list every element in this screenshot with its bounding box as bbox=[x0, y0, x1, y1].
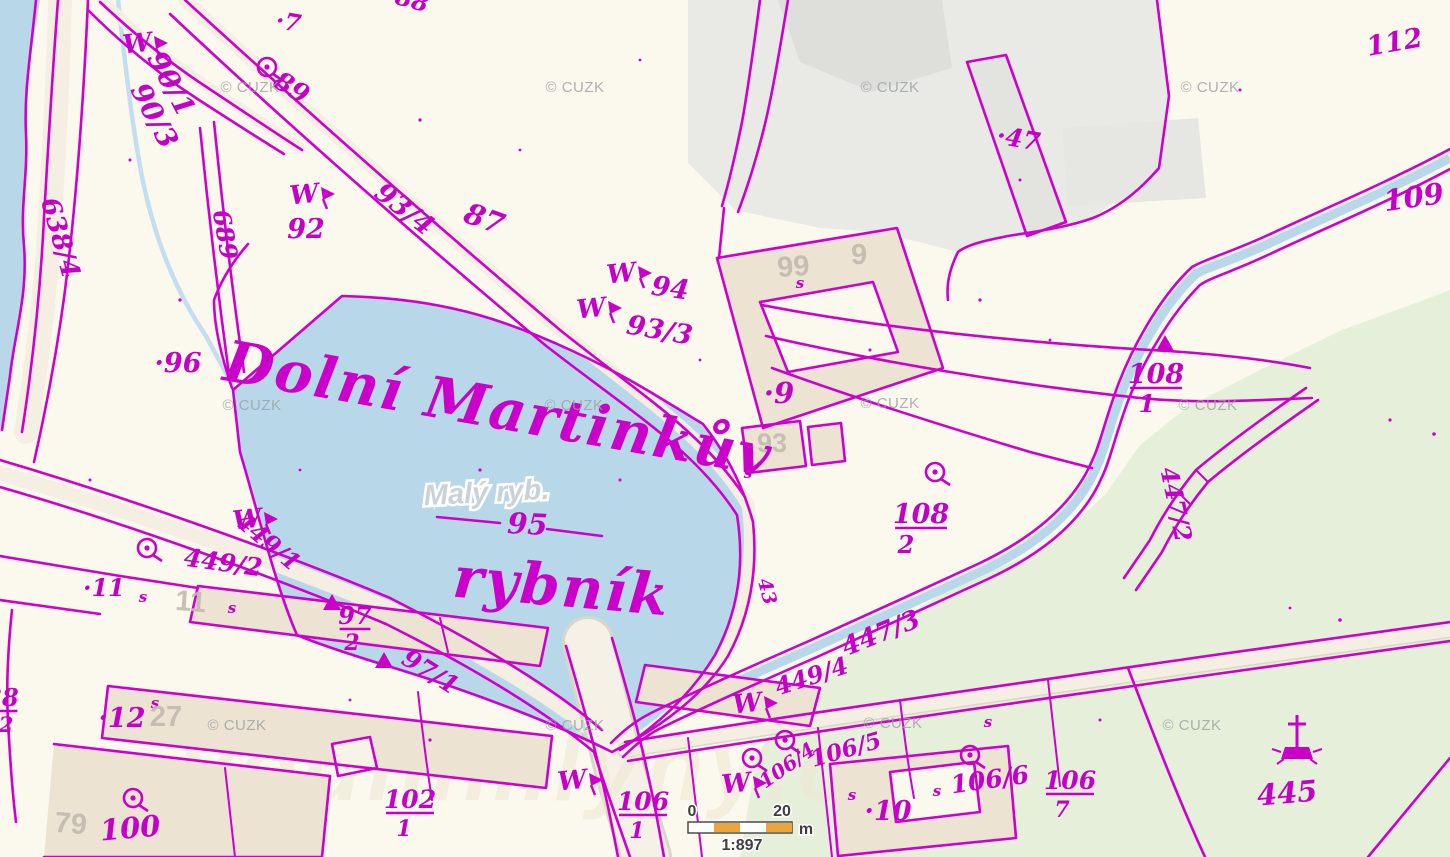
cuzk-watermark: © CUZK bbox=[1180, 79, 1239, 96]
cuzk-watermark: © CUZK bbox=[220, 79, 279, 96]
parcel-label: 2 bbox=[897, 530, 915, 559]
parcel-label: 97 bbox=[338, 601, 372, 630]
parcel-label: 108 bbox=[893, 499, 950, 530]
parcel-label: 1 bbox=[629, 818, 644, 844]
parcel-label: 92 bbox=[287, 214, 325, 245]
parcel-label: 38 bbox=[0, 683, 19, 712]
parcel-label: 445 bbox=[1255, 773, 1318, 812]
parcel-label: 1 bbox=[1139, 389, 1156, 418]
map-canvas[interactable]: W s bbox=[0, 0, 1450, 857]
cadastral-map-view: W s bbox=[0, 0, 1450, 857]
parcel-label: ·96 bbox=[155, 348, 202, 379]
cuzk-watermark: © CUZK bbox=[544, 397, 603, 414]
parcel-label: 106 bbox=[1044, 766, 1096, 795]
scalebar-segment bbox=[766, 823, 792, 832]
cuzk-watermark: © CUZK bbox=[545, 79, 604, 96]
parcel-label: 7 bbox=[1054, 797, 1070, 823]
parcel-label: ·9 bbox=[764, 376, 794, 410]
parcel-label: Malý ryb. bbox=[423, 474, 550, 513]
parcel-label: 2 bbox=[343, 630, 359, 656]
parcel-label: 108 bbox=[1128, 359, 1185, 390]
cuzk-watermark: © CUZK bbox=[863, 715, 922, 732]
s-mark-icon bbox=[933, 782, 942, 800]
scalebar-end: 20 bbox=[773, 803, 791, 820]
parcel-label: 102 bbox=[384, 785, 436, 814]
basemap-label: 27 bbox=[150, 701, 182, 733]
parcel-label: 94 bbox=[649, 271, 691, 307]
basemap-label: 9 bbox=[851, 239, 867, 271]
cuzk-watermark: © CUZK bbox=[860, 395, 919, 412]
cuzk-watermark: © CUZK bbox=[1178, 397, 1237, 414]
cuzk-watermark: © CUZK bbox=[1162, 717, 1221, 734]
parcel-label: ·12 bbox=[99, 703, 146, 734]
basemap-label: 79 bbox=[53, 807, 88, 842]
basemap-label: 99 bbox=[776, 250, 810, 284]
parcel-label: 95 bbox=[506, 506, 548, 542]
scalebar-ratio: 1:897 bbox=[722, 837, 763, 854]
scalebar-unit: m bbox=[799, 821, 813, 838]
s-mark-icon bbox=[228, 599, 237, 617]
s-mark-icon bbox=[139, 588, 148, 606]
cuzk-watermark: © CUZK bbox=[860, 79, 919, 96]
parcel-label: 100 bbox=[98, 808, 161, 847]
scalebar-start: 0 bbox=[688, 803, 697, 820]
s-mark-icon bbox=[984, 713, 993, 731]
parcel-label: 106 bbox=[617, 787, 669, 816]
parcel-label: 2 bbox=[0, 712, 13, 737]
cuzk-watermark: © CUZK bbox=[207, 717, 266, 734]
parcel-label: ·11 bbox=[83, 573, 125, 602]
scalebar-segment bbox=[714, 823, 740, 832]
parcel-label: ·7 bbox=[274, 5, 304, 38]
basemap-label: 11 bbox=[174, 585, 207, 619]
cuzk-watermark: © CUZK bbox=[222, 397, 281, 414]
cuzk-watermark: © CUZK bbox=[545, 717, 604, 734]
s-mark-icon bbox=[848, 786, 857, 804]
parcel-label: ·10 bbox=[865, 796, 912, 827]
parcel-label: 1 bbox=[396, 816, 411, 842]
